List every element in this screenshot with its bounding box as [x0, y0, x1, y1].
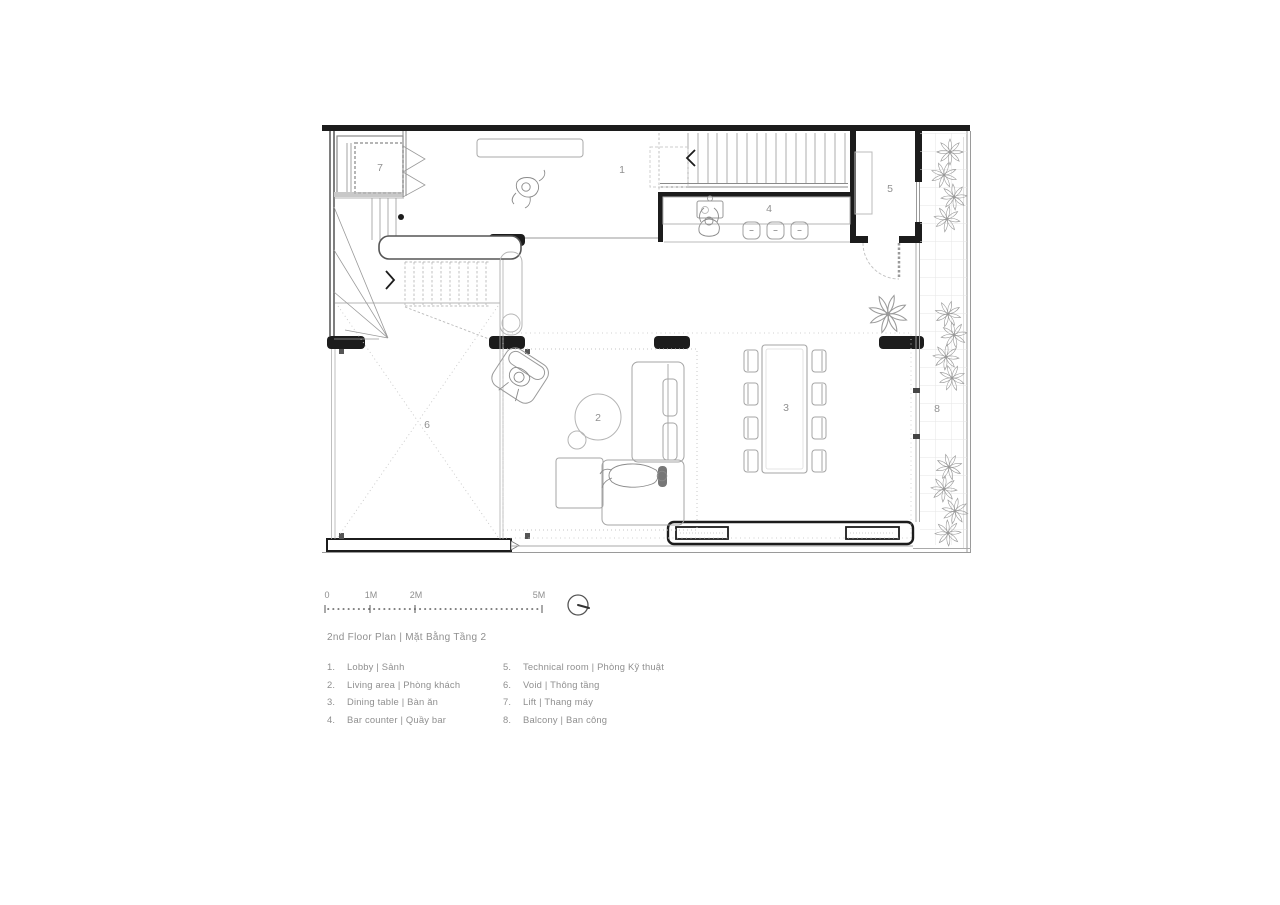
- south-west-wall: [327, 539, 511, 551]
- north-wall: [322, 125, 970, 131]
- legend-label: Lobby | Sảnh: [347, 661, 404, 672]
- column: [879, 336, 924, 349]
- legend-label: Balcony | Ban công: [523, 714, 607, 725]
- chair: [744, 350, 758, 372]
- legend-item-lift: 7.Lift | Thang máy: [503, 693, 664, 711]
- sink: [697, 201, 723, 218]
- technical-room: [855, 152, 899, 279]
- room-label-bar-counter: 4: [766, 203, 772, 215]
- scale-bar: 0 1M 2M 5M: [324, 590, 545, 613]
- scale-tick-2m: 2M: [410, 590, 423, 600]
- equipment: [855, 152, 872, 214]
- windows-railings: [322, 131, 971, 553]
- chair: [744, 450, 758, 472]
- stair-handrail: [379, 236, 521, 259]
- chair: [812, 417, 826, 439]
- room-label-balcony: 8: [934, 403, 940, 415]
- floor-plan-drawing: 1 2 3 4 5 6 7 8 0 1M 2M 5M: [0, 0, 1280, 905]
- chair: [812, 450, 826, 472]
- legend-num: 2.: [327, 679, 347, 690]
- living-furniture: [487, 252, 697, 530]
- legend-label: Lift | Thang máy: [523, 696, 593, 707]
- legend-num: 1.: [327, 661, 347, 672]
- scale-tick-1m: 1M: [365, 590, 378, 600]
- legend-num: 6.: [503, 679, 523, 690]
- chair: [812, 350, 826, 372]
- stairs-straight-run: [405, 262, 490, 339]
- chair: [744, 417, 758, 439]
- legend-label: Technical room | Phòng Kỹ thuật: [523, 661, 664, 672]
- armchair: [487, 344, 552, 409]
- room-label-void: 6: [424, 419, 430, 431]
- west-wall: [330, 131, 334, 336]
- person-walking: [512, 170, 545, 208]
- stair-direction-arrow: [386, 271, 394, 289]
- column: [327, 336, 365, 349]
- sofa-cushion: [663, 379, 677, 416]
- room-label-living-area: 2: [595, 412, 601, 424]
- legend-num: 4.: [327, 714, 347, 725]
- sofa-chaise: [602, 460, 684, 525]
- legend-num: 7.: [503, 696, 523, 707]
- stairs-top-run: [650, 133, 848, 190]
- side-table: [568, 431, 586, 449]
- sofa: [556, 362, 684, 525]
- legend-item-lobby: 1.Lobby | Sảnh: [327, 658, 460, 676]
- ottoman: [556, 458, 603, 508]
- legend-label: Void | Thông tầng: [523, 679, 600, 690]
- floor-plan-sheet: 1 2 3 4 5 6 7 8 0 1M 2M 5M 2nd Floor Pla…: [0, 0, 1280, 905]
- indoor-plant: [863, 289, 912, 338]
- sofa-cushion: [663, 423, 677, 460]
- legend-item-dining-table: 3.Dining table | Bàn ăn: [327, 693, 460, 711]
- legend-item-void: 6.Void | Thông tầng: [503, 676, 664, 694]
- legend-column-2: 5.Technical room | Phòng Kỹ thuật 6.Void…: [503, 658, 664, 728]
- void-cross: [338, 306, 498, 537]
- room-label-lobby: 1: [619, 164, 625, 176]
- chair: [812, 383, 826, 405]
- legend-item-bar-counter: 4.Bar counter | Quầy bar: [327, 711, 460, 729]
- plan-title: 2nd Floor Plan | Mặt Bằng Tầng 2: [327, 632, 486, 643]
- lobby-bench: [477, 139, 583, 157]
- lift: [347, 143, 425, 197]
- legend-label: Bar counter | Quầy bar: [347, 714, 446, 725]
- column: [489, 336, 525, 349]
- door-swing: [863, 243, 899, 279]
- hair: [658, 466, 667, 487]
- legend-label: Dining table | Bàn ăn: [347, 696, 438, 707]
- scale-tick-5m: 5M: [533, 590, 546, 600]
- person-lying: [600, 464, 667, 488]
- room-label-technical-room: 5: [887, 183, 893, 195]
- room-label-dining-table: 3: [783, 402, 789, 414]
- scale-tick-0: 0: [324, 590, 329, 600]
- legend-item-technical-room: 5.Technical room | Phòng Kỹ thuật: [503, 658, 664, 676]
- legend-column-1: 1.Lobby | Sảnh 2.Living area | Phòng khá…: [327, 658, 460, 728]
- chair: [744, 383, 758, 405]
- legend-item-living-area: 2.Living area | Phòng khách: [327, 676, 460, 694]
- legend-label: Living area | Phòng khách: [347, 679, 460, 690]
- legend-item-balcony: 8.Balcony | Ban công: [503, 711, 664, 729]
- bar-counter: [663, 196, 850, 239]
- lobby-furniture: [477, 139, 583, 208]
- room-label-lift: 7: [377, 162, 383, 174]
- column: [654, 336, 690, 349]
- legend-num: 8.: [503, 714, 523, 725]
- stair-reference-dot: [398, 214, 404, 220]
- bar-stools: [743, 222, 808, 239]
- legend-num: 5.: [503, 661, 523, 672]
- legend-num: 3.: [327, 696, 347, 707]
- stairs-winder: [334, 198, 404, 339]
- north-indicator-icon: [568, 595, 589, 615]
- walls: [322, 125, 970, 551]
